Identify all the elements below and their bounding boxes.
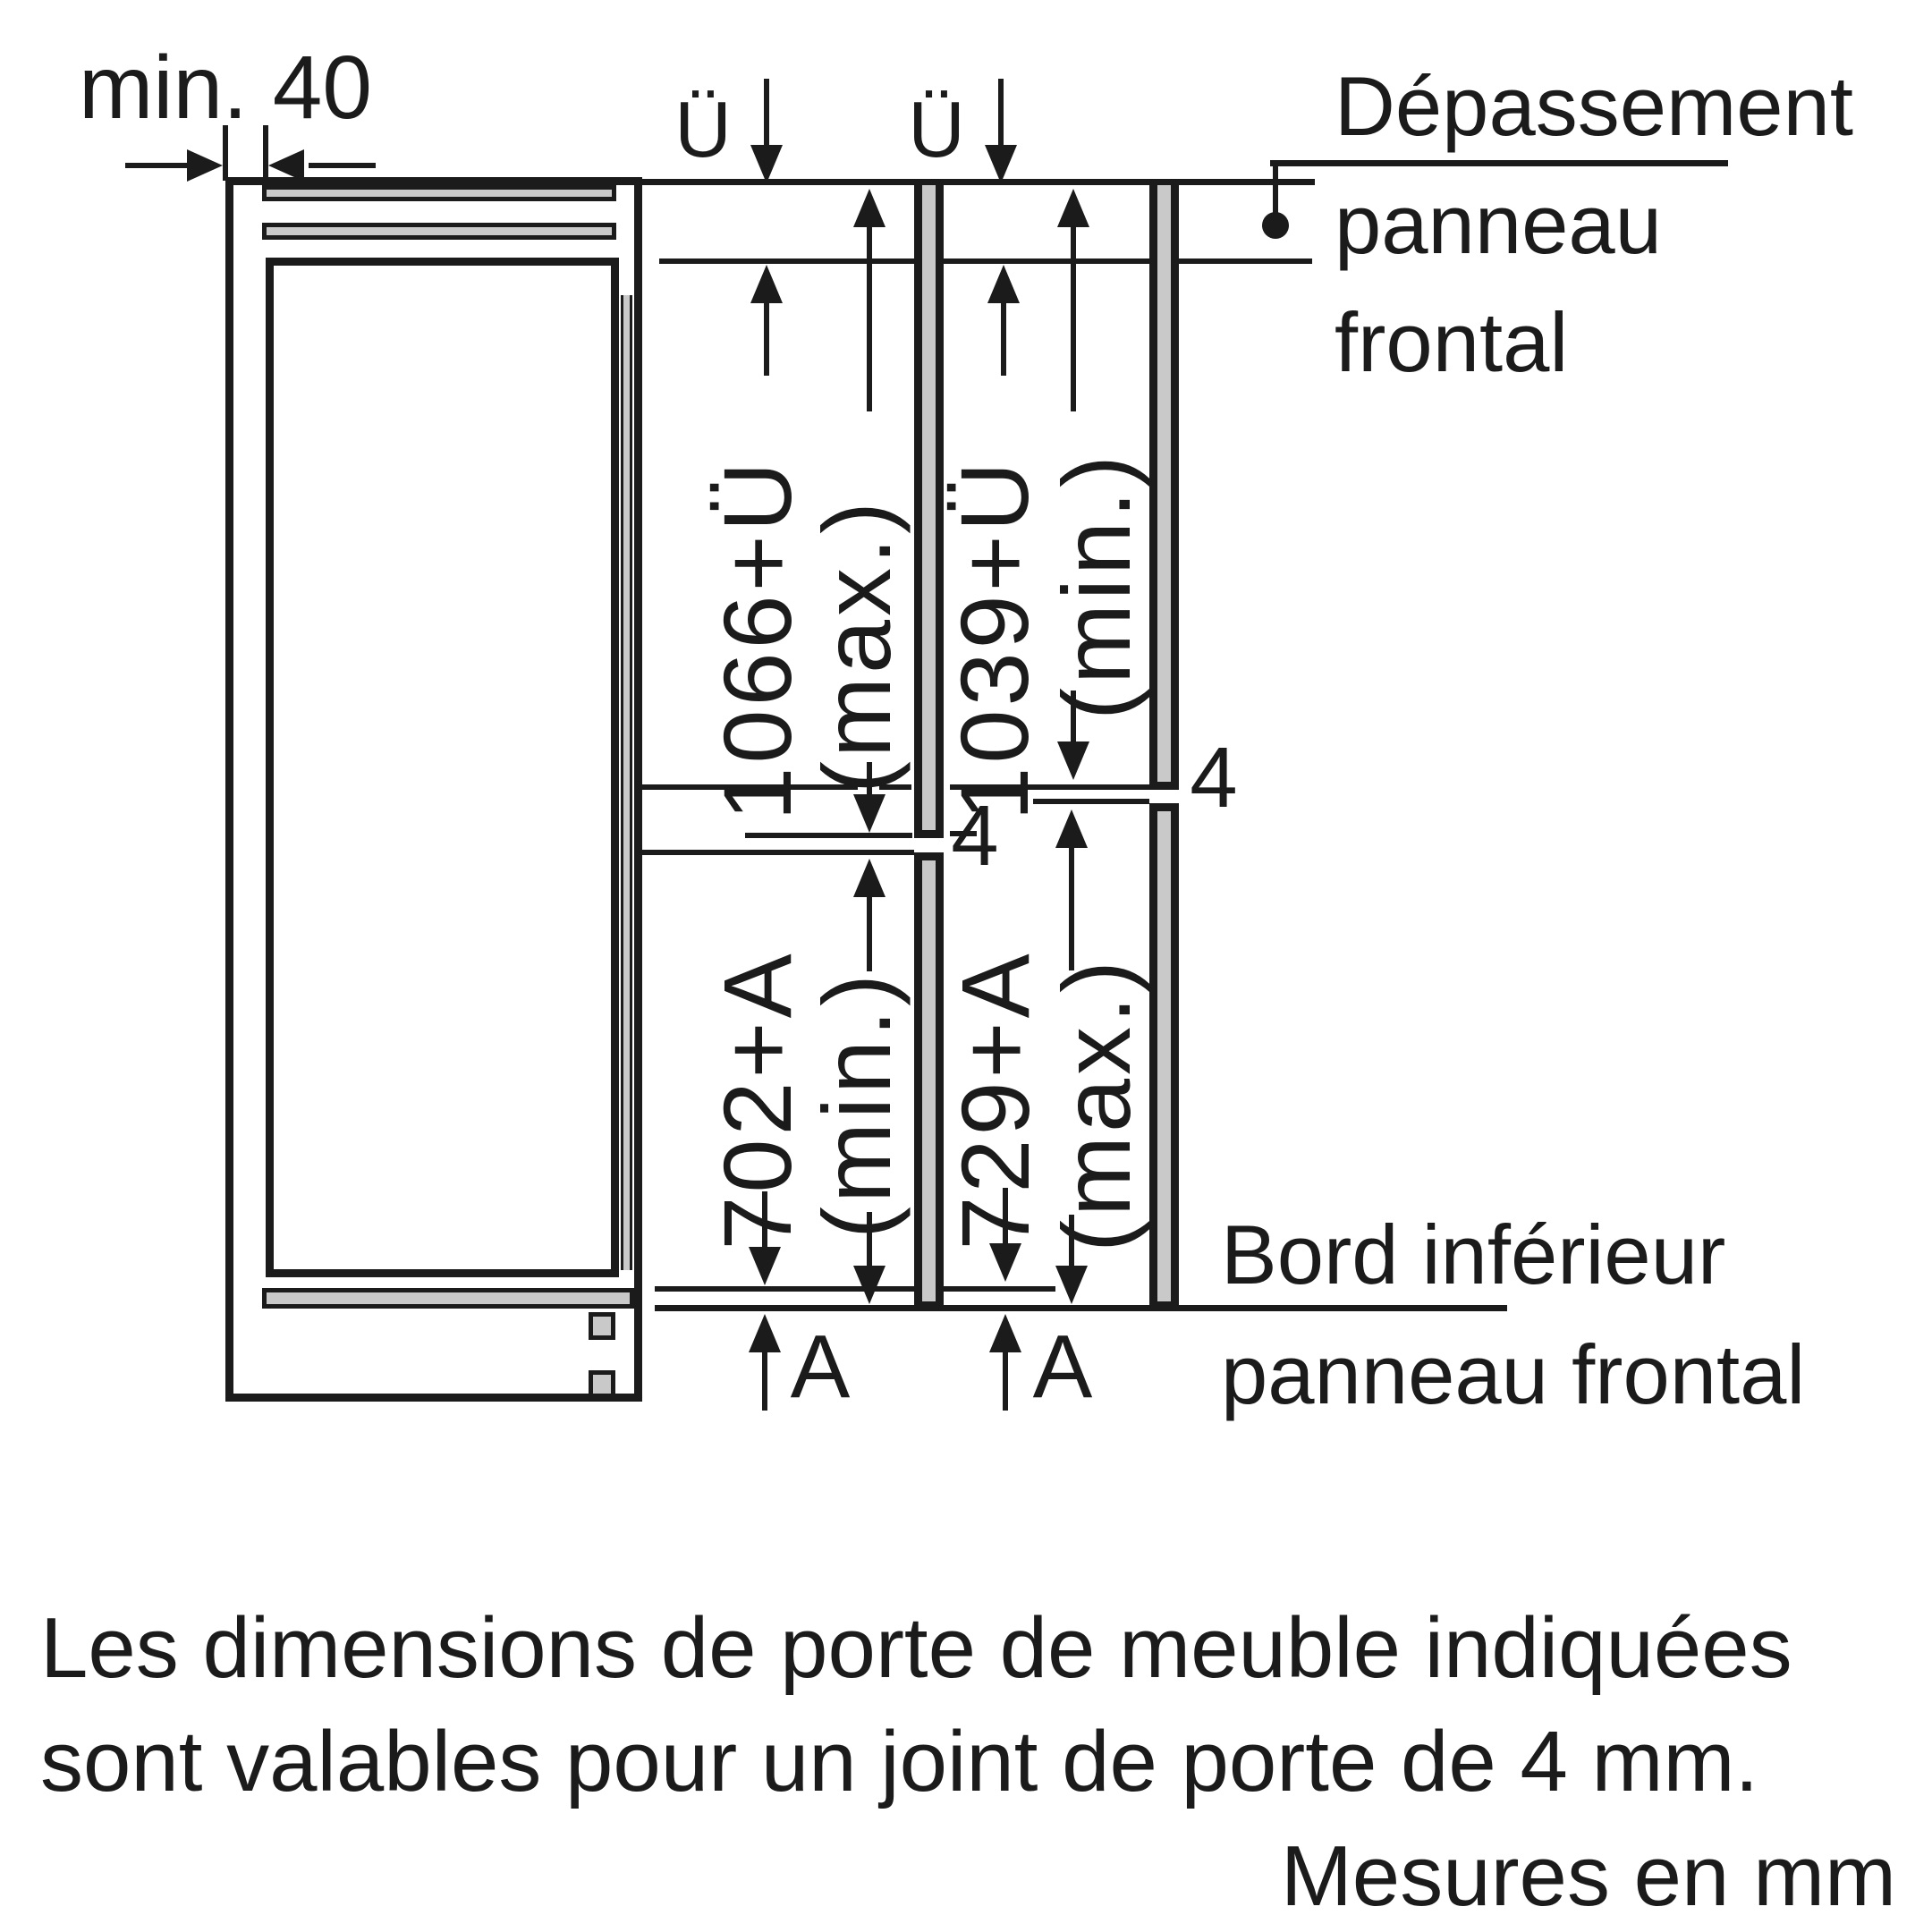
callout-leader-drop	[1273, 163, 1278, 216]
lower-door-max-top-line	[1033, 799, 1149, 804]
dim-shaft	[1071, 227, 1076, 411]
door-panel-strip-upper-right	[1149, 185, 1179, 790]
footer-units-note: Mesures en mm	[1281, 1834, 1896, 1919]
dimension-qualifier-upper-min: (min.)	[1048, 452, 1145, 720]
dim-shaft	[309, 163, 376, 168]
installation-diagram: min. 40 Ü Ü 1066+Ü (max.) 1039+Ü (min.) …	[0, 0, 1932, 1932]
dimension-label-lower-min: 702+A	[709, 950, 806, 1250]
bottom-offset-label-left: A	[791, 1322, 851, 1411]
plinth-panel	[262, 1288, 634, 1309]
dim-shaft	[1069, 1215, 1074, 1266]
callout-lower-edge-line1: Bord inférieur	[1221, 1213, 1725, 1297]
dim-shaft	[762, 1191, 767, 1247]
arrowhead-up-icon	[987, 265, 1020, 303]
dimension-qualifier-upper-max: (max.)	[809, 498, 905, 793]
arrowhead-up-icon	[750, 265, 783, 303]
callout-leader-line	[1270, 160, 1728, 166]
dim-shaft	[762, 1352, 767, 1411]
arrowhead-up-icon	[1057, 189, 1089, 227]
dim-shaft	[1071, 691, 1076, 741]
callout-leader-dot-icon	[1262, 212, 1289, 239]
appliance-foot-lower	[589, 1370, 615, 1398]
arrowhead-down-icon	[1057, 741, 1089, 780]
arrowhead-down-icon	[985, 145, 1017, 183]
callout-overhang-line2: panneau	[1335, 182, 1662, 267]
dim-shaft	[1003, 1188, 1008, 1243]
cabinet-top-rail-front	[262, 185, 616, 201]
arrowhead-down-icon	[853, 1266, 885, 1304]
door-hinge-gap-strip	[621, 295, 632, 1270]
overhang-label-left: Ü	[674, 90, 732, 169]
dim-shaft	[867, 762, 872, 794]
dimension-label-upper-min: 1039+Ü	[946, 458, 1043, 820]
joint-gap-label-right: 4	[1190, 735, 1237, 821]
arrowhead-down-icon	[853, 794, 885, 833]
dim-shaft	[867, 897, 872, 971]
dim-shaft	[1003, 1352, 1008, 1411]
callout-overhang-line3: frontal	[1335, 301, 1568, 385]
cabinet-top-rail-rear	[262, 223, 616, 240]
arrowhead-up-icon	[853, 189, 885, 227]
dim-shaft	[764, 79, 769, 150]
footer-note-line1: Les dimensions de porte de meuble indiqu…	[40, 1606, 1792, 1691]
dim-shaft	[125, 163, 191, 168]
arrowhead-up-icon	[1055, 809, 1088, 848]
footer-note-line2: sont valables pour un joint de porte de …	[40, 1719, 1758, 1805]
upper-door-max-bottom-line	[745, 833, 912, 838]
dim-shaft	[1069, 848, 1074, 970]
dimension-label-upper-max: 1066+Ü	[709, 458, 806, 820]
overhang-label-right: Ü	[908, 90, 965, 169]
arrowhead-up-icon	[853, 859, 885, 897]
wall-clearance-label: min. 40	[79, 43, 372, 132]
extension-tick-left	[223, 125, 228, 181]
joint-gap-label-left: 4	[951, 793, 998, 879]
dim-shaft	[1001, 303, 1006, 376]
panel-lower-edge-line	[655, 1305, 1507, 1311]
dim-shaft	[867, 227, 872, 411]
arrowhead-down-icon	[989, 1243, 1021, 1282]
arrowhead-down-icon	[749, 1247, 781, 1285]
appliance-foot-upper	[589, 1312, 615, 1340]
dimension-qualifier-lower-min: (min.)	[809, 970, 905, 1239]
bottom-offset-label-right: A	[1033, 1322, 1093, 1411]
lower-door-min-top-line	[635, 850, 914, 855]
dim-shaft	[998, 79, 1004, 150]
callout-lower-edge-line2: panneau frontal	[1221, 1333, 1805, 1417]
door-panel-strip-lower-right	[1149, 803, 1179, 1309]
arrowhead-up-icon	[989, 1314, 1021, 1352]
arrowhead-up-icon	[749, 1314, 781, 1352]
arrowhead-down-icon	[1055, 1266, 1088, 1304]
arrowhead-down-icon	[750, 145, 783, 183]
arrowhead-right-icon	[187, 149, 223, 182]
arrowhead-left-icon	[268, 149, 304, 182]
appliance-body	[266, 258, 619, 1277]
dim-shaft	[764, 303, 769, 376]
dim-shaft	[867, 1212, 872, 1266]
door-panel-strip-lower-left	[914, 852, 944, 1309]
appliance-top-reference-line	[659, 258, 1312, 264]
callout-overhang-line1: Dépassement	[1335, 64, 1853, 148]
dimension-label-lower-max: 729+A	[947, 950, 1044, 1250]
dimension-qualifier-lower-max: (max.)	[1048, 957, 1145, 1252]
